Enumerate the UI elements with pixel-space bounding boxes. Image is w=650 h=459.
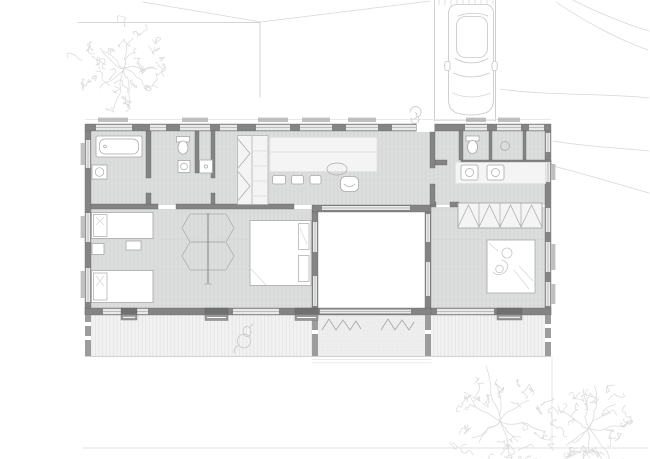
tree-foliage <box>152 74 158 88</box>
tree-foliage <box>473 383 484 398</box>
tree-branch <box>124 68 130 103</box>
bifold-wardrobe <box>458 203 542 228</box>
boundary-line-northwest <box>78 23 260 98</box>
tree-foliage <box>591 449 602 459</box>
tree-sketch <box>67 16 165 112</box>
tree-foliage <box>534 433 547 439</box>
tree-foliage <box>595 447 604 455</box>
tree-foliage <box>114 80 128 93</box>
tree-branch <box>480 421 501 443</box>
tree-branch <box>566 428 589 446</box>
tree-foliage <box>117 16 126 27</box>
tree-foliage <box>112 87 120 93</box>
tree-foliage <box>553 424 567 436</box>
garden-steps <box>312 360 431 363</box>
shower-tray <box>200 160 213 173</box>
single-bed <box>92 213 154 239</box>
tree-foliage <box>108 48 115 53</box>
car-mirror-left <box>445 62 450 71</box>
nightstand <box>92 244 104 255</box>
tree-branch <box>500 421 545 431</box>
tree-foliage <box>541 398 554 405</box>
tree-foliage <box>138 24 148 35</box>
tree-foliage <box>536 406 542 414</box>
tree-branch <box>589 405 616 428</box>
tree-foliage <box>615 433 621 441</box>
tree-foliage <box>558 404 567 413</box>
laundry-appliances <box>456 163 546 184</box>
floor-plan-page <box>0 0 650 459</box>
entry-plant-sketch <box>410 107 421 124</box>
bathtub <box>96 136 142 157</box>
tree-branch <box>572 428 589 443</box>
tree-branch <box>496 384 501 421</box>
double-bed <box>250 221 311 286</box>
walk-in-closet-unit <box>238 136 269 205</box>
tree-foliage <box>548 444 554 451</box>
tree-foliage <box>548 412 556 425</box>
tree-foliage <box>482 454 494 459</box>
deck-west <box>91 315 312 356</box>
tree-foliage <box>92 76 97 81</box>
single-bed <box>92 271 154 303</box>
deck-screen-wall <box>85 315 91 356</box>
tree-branch <box>102 52 124 69</box>
tree-branch <box>472 421 500 438</box>
tree-foliage <box>159 57 164 61</box>
tree-foliage <box>106 108 114 113</box>
tree-foliage <box>464 395 471 401</box>
tree-foliage <box>603 410 617 416</box>
building-layer <box>81 118 556 363</box>
tree-foliage <box>609 394 625 400</box>
boundary-diagonals <box>143 1 430 22</box>
floor-plan-drawing <box>0 0 650 459</box>
deck-screen-wall <box>425 315 431 356</box>
tree-foliage <box>474 377 479 383</box>
kitchen-light-zone <box>270 138 377 172</box>
garden-strip <box>318 315 425 356</box>
tree-foliage <box>130 80 137 88</box>
tree-foliage <box>548 407 559 414</box>
tree-foliage <box>522 384 532 398</box>
tree-foliage <box>149 46 160 54</box>
tree-foliage <box>511 402 521 407</box>
tree-foliage <box>507 444 515 457</box>
tree-foliage <box>571 403 578 416</box>
tree-foliage <box>133 31 137 37</box>
bench <box>126 241 141 250</box>
washbasin <box>92 165 107 179</box>
tree-foliage <box>607 436 616 446</box>
tree-foliage <box>569 419 575 425</box>
tree-foliage <box>86 46 94 55</box>
tree-foliage <box>67 53 82 61</box>
tree-foliage <box>517 379 521 386</box>
entry-door-opening <box>417 123 435 132</box>
tree-foliage <box>461 444 474 455</box>
deck-east <box>431 315 545 356</box>
washbasin <box>178 161 190 173</box>
car <box>445 5 497 116</box>
tree-foliage <box>622 405 631 424</box>
car-mirror-right <box>492 62 497 71</box>
tree-foliage <box>606 385 614 393</box>
master-bed <box>487 240 535 293</box>
tree-foliage <box>606 430 614 438</box>
deck-screen-wall <box>545 315 551 356</box>
tree-foliage <box>153 37 161 44</box>
courtyard <box>318 212 425 308</box>
deck-screen-wall <box>312 315 318 356</box>
